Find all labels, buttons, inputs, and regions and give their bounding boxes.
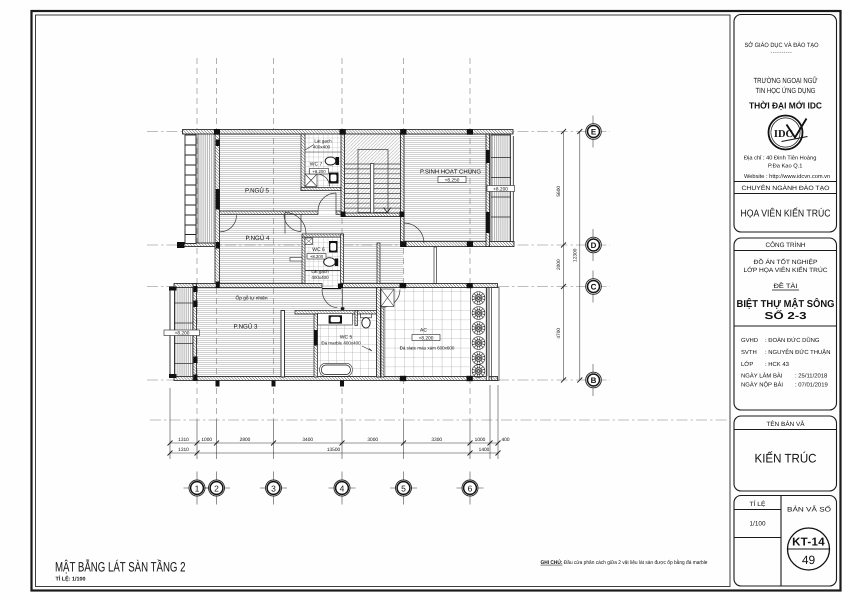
svg-text:GVHD: GVHD <box>741 337 758 344</box>
svg-text:49: 49 <box>802 553 816 567</box>
svg-text:1310: 1310 <box>178 447 189 453</box>
svg-text:2: 2 <box>214 483 219 493</box>
svg-text:TÊN BẢN VẴ: TÊN BẢN VẴ <box>767 420 806 428</box>
svg-text:TỈ LỆ: 1/100: TỈ LỆ: 1/100 <box>56 576 86 583</box>
svg-text:SỐ 2-3: SỐ 2-3 <box>765 310 808 322</box>
svg-text:: ĐOÀN ĐỨC DŨNG: : ĐOÀN ĐỨC DŨNG <box>765 336 820 344</box>
svg-text:TRƯỜNG NGOẠI NGỮ: TRƯỜNG NGOẠI NGỮ <box>754 76 818 85</box>
svg-text:+8.200: +8.200 <box>310 254 324 259</box>
svg-text:Đá marble 400x400: Đá marble 400x400 <box>321 341 361 346</box>
svg-text:1400: 1400 <box>479 447 490 453</box>
svg-text:3000: 3000 <box>367 437 378 443</box>
svg-text:P.NGỦ 4: P.NGỦ 4 <box>246 234 271 242</box>
svg-text:NGÀY LÀM BÀI: NGÀY LÀM BÀI <box>741 372 783 380</box>
svg-text:WC 7: WC 7 <box>310 162 323 168</box>
svg-text:AC: AC <box>420 328 427 334</box>
svg-text:NGÀY NỘP BÀI: NGÀY NỘP BÀI <box>741 381 783 389</box>
svg-text:P.NGỦ 3: P.NGỦ 3 <box>234 323 259 331</box>
svg-text:6: 6 <box>468 483 473 493</box>
svg-text:Ốp gỗ tự nhiên: Ốp gỗ tự nhiên <box>235 295 267 302</box>
svg-text:+8.200: +8.200 <box>312 169 326 174</box>
svg-text:Địa chỉ : 40 Đinh Tiên Hoàng: Địa chỉ : 40 Đinh Tiên Hoàng <box>744 155 816 162</box>
svg-text:CÔNG TRÌNH: CÔNG TRÌNH <box>766 241 806 249</box>
svg-text:12300: 12300 <box>573 248 579 262</box>
svg-text:B: B <box>591 376 597 385</box>
svg-text:----------: ---------- <box>771 50 793 56</box>
svg-text:13500: 13500 <box>327 447 341 453</box>
svg-text:3400: 3400 <box>302 437 313 443</box>
svg-text:400: 400 <box>501 437 509 443</box>
svg-text:1310: 1310 <box>178 437 189 443</box>
svg-text:4: 4 <box>340 483 345 493</box>
svg-text:+8.200: +8.200 <box>419 335 434 341</box>
svg-text:3: 3 <box>271 483 276 493</box>
svg-text:1000: 1000 <box>475 437 486 443</box>
svg-text:400x400: 400x400 <box>313 144 331 149</box>
svg-text:+8.200: +8.200 <box>175 331 190 337</box>
svg-text:4700: 4700 <box>556 328 562 339</box>
svg-text:WC 6: WC 6 <box>312 247 325 253</box>
svg-text:KIẾN TRÚC: KIẾN TRÚC <box>755 451 817 466</box>
svg-text:GHI CHÚ: Đầu cửa phân cách giữ: GHI CHÚ: Đầu cửa phân cách giữa 2 vật li… <box>541 559 708 566</box>
svg-text:LỚP HỌA VIÊN KIẾN TRÚC: LỚP HỌA VIÊN KIẾN TRÚC <box>744 266 829 274</box>
svg-text:KT-14: KT-14 <box>792 537 825 549</box>
svg-text:SVTH: SVTH <box>741 349 757 356</box>
svg-text:Lát gạch: Lát gạch <box>314 138 332 143</box>
svg-text:C: C <box>591 283 597 292</box>
svg-text:ĐỒ ÁN TỐT NGHIỆP: ĐỒ ÁN TỐT NGHIỆP <box>754 258 818 266</box>
svg-text:BẢN VẴ SỐ: BẢN VẴ SỐ <box>787 506 831 514</box>
svg-text:2800: 2800 <box>240 437 251 443</box>
svg-text:: 25/11/2018: : 25/11/2018 <box>795 373 828 380</box>
svg-text:HỌA VIÊN KIẾN TRÚC: HỌA VIÊN KIẾN TRÚC <box>741 208 831 220</box>
svg-text:5: 5 <box>401 483 406 493</box>
svg-text:Website : http://www.idcvn.com: Website : http://www.idcvn.com.vn <box>744 173 830 180</box>
svg-text:P.NGỦ 5: P.NGỦ 5 <box>245 187 270 195</box>
svg-text:Đá slate màu xám 600x600: Đá slate màu xám 600x600 <box>400 346 455 351</box>
svg-text:E: E <box>591 128 597 137</box>
svg-text:BIỆT THỰ MẬT SÔNG: BIỆT THỰ MẬT SÔNG <box>737 298 835 310</box>
svg-text:: 07/01/2019: : 07/01/2019 <box>795 382 828 389</box>
svg-text:CHUYÊN NGÀNH ĐÀO TẠO: CHUYÊN NGÀNH ĐÀO TẠO <box>742 184 830 192</box>
svg-text:D: D <box>591 241 597 250</box>
svg-text:400x400: 400x400 <box>311 275 329 280</box>
svg-text:: NGUYỄN ĐỨC THUẬN: : NGUYỄN ĐỨC THUẬN <box>765 348 830 356</box>
svg-text:3300: 3300 <box>431 437 442 443</box>
svg-text:TIN HỌC ỨNG DỤNG: TIN HỌC ỨNG DỤNG <box>756 86 816 95</box>
svg-text:Lát gạch: Lát gạch <box>311 269 329 274</box>
svg-text:MẬT BẪNG LÁT SÀN TẦNG 2: MẬT BẪNG LÁT SÀN TẦNG 2 <box>55 559 186 575</box>
svg-text:1: 1 <box>195 483 200 493</box>
svg-text:5600: 5600 <box>556 186 562 197</box>
svg-text:2000: 2000 <box>556 259 562 270</box>
svg-text:TỈ LỆ: TỈ LỆ <box>750 500 766 508</box>
svg-text:P.SINH HOẠT CHUNG: P.SINH HOẠT CHUNG <box>420 169 481 176</box>
svg-text:1000: 1000 <box>201 437 212 443</box>
svg-text:THỜI ĐẠI MỚI IDC: THỜI ĐẠI MỚI IDC <box>749 101 823 111</box>
svg-text:P.Đa Kao Q.1: P.Đa Kao Q.1 <box>768 164 802 170</box>
svg-text:+8.250: +8.250 <box>445 177 460 183</box>
svg-text:SỞ GIÁO DỤC VÀ ĐÀO TẠO: SỞ GIÁO DỤC VÀ ĐÀO TẠO <box>745 41 819 49</box>
svg-text:: HCK 43: : HCK 43 <box>765 361 790 368</box>
svg-text:ĐỀ TÀI: ĐỀ TÀI <box>774 282 798 290</box>
svg-text:1/100: 1/100 <box>750 521 766 528</box>
svg-text:LỚP: LỚP <box>741 360 753 368</box>
svg-text:+8.200: +8.200 <box>493 186 508 192</box>
